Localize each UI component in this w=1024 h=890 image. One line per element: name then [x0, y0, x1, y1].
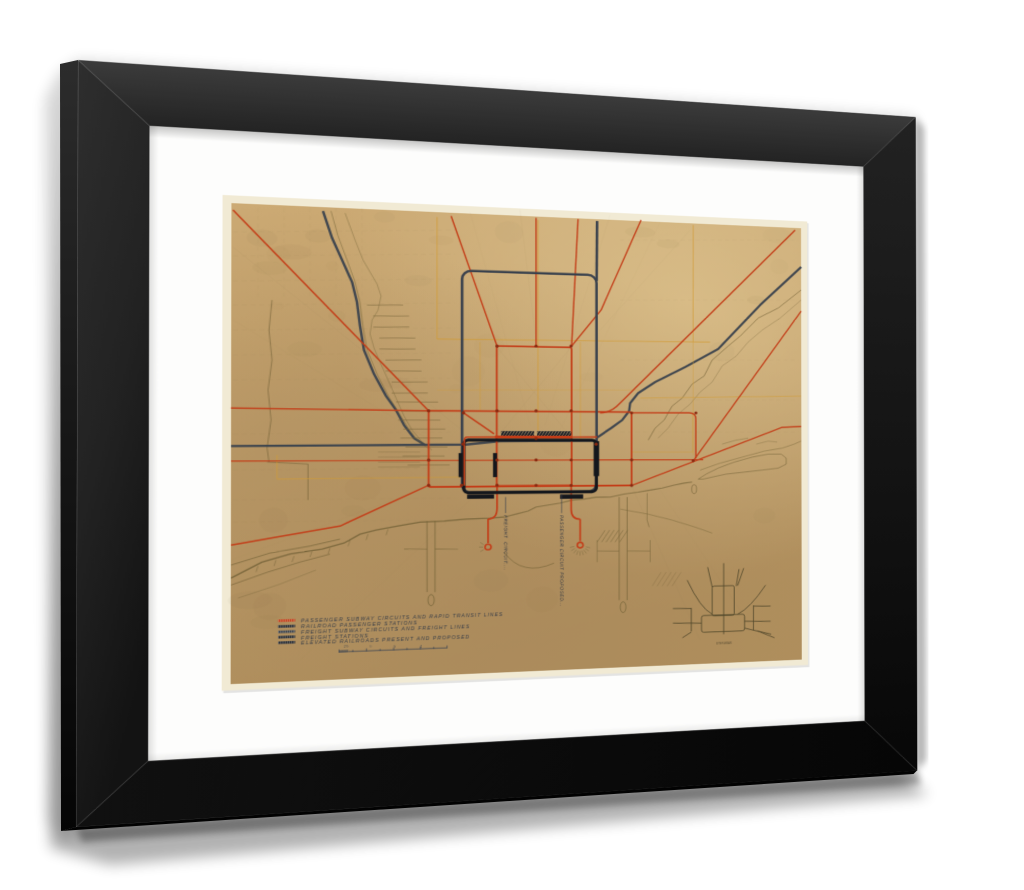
svg-text:1: 1: [420, 645, 422, 649]
svg-text:INTERURBAN: INTERURBAN: [716, 642, 732, 646]
svg-text:¾: ¾: [393, 645, 396, 649]
svg-text:FREIGHT CIRCUIT....: FREIGHT CIRCUIT....: [502, 515, 507, 571]
svg-text:½: ½: [369, 645, 372, 649]
svg-text:1¼: 1¼: [344, 645, 349, 649]
svg-text:PASSENGER CIRCUIT PROPOSED...: PASSENGER CIRCUIT PROPOSED...: [558, 515, 563, 607]
